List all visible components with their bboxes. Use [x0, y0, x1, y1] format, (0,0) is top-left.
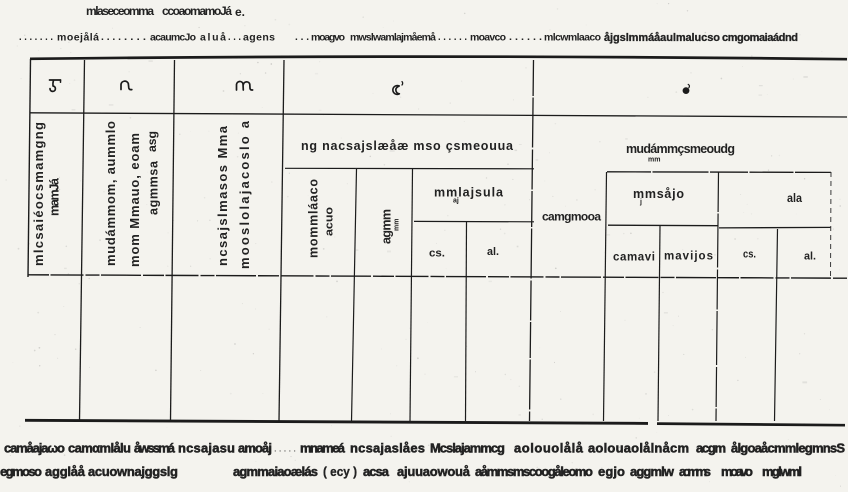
svg-text:ajuuaowouå: ajuuaowouå	[397, 464, 471, 479]
svg-text:agmm: agmm	[380, 209, 394, 244]
svg-text:cs.: cs.	[429, 248, 445, 260]
svg-text:. . . . . .: . . . . . .	[509, 31, 542, 43]
svg-text:moavco: moavco	[470, 32, 506, 44]
svg-text:mlcwmlaaco: mlcwmlaaco	[544, 32, 601, 44]
svg-text:ålgoaåcmmlegmnsS: ålgoaåcmmlegmnsS	[731, 441, 845, 456]
svg-text:al.: al.	[804, 251, 816, 263]
svg-text:e.: e.	[235, 5, 245, 19]
svg-text:ng nacsajslæåæ mso çsmeouua: ng nacsajslæåæ mso çsmeouua	[301, 139, 514, 153]
svg-text:. . .: . . .	[295, 31, 309, 43]
svg-text:åjgslmmáåaulmalucso: åjgslmmáåaulmalucso	[604, 32, 720, 44]
svg-text:mooslolajacoslo a: mooslolajacoslo a	[237, 120, 252, 269]
svg-text:mavijos: mavijos	[664, 251, 713, 263]
svg-text:. . . .: . . . .	[101, 31, 121, 43]
svg-text:acaumcJo: acaumcJo	[150, 32, 196, 44]
svg-text:cmgomaiaádnd: cmgomaiaádnd	[722, 32, 798, 44]
svg-text:mm: mm	[648, 157, 660, 164]
svg-text:moejålá: moejålá	[57, 32, 99, 44]
svg-text:mom Mmauo, eoam: mom Mmauo, eoam	[127, 133, 142, 267]
svg-text:mudámmom, aummlo: mudámmom, aummlo	[103, 121, 118, 266]
svg-text:acsa: acsa	[363, 464, 390, 479]
svg-text:aj: aj	[453, 198, 459, 205]
svg-text:acgm: acgm	[696, 441, 726, 456]
svg-text:mlcsaiéocsmamgng: mlcsaiéocsmamgng	[31, 122, 46, 266]
svg-text:aåmmsmscoogåleomo: aåmmsmscoogåleomo	[475, 464, 593, 479]
svg-text:agmmsa: agmmsa	[147, 160, 161, 215]
svg-text:mmlajsula: mmlajsula	[434, 186, 504, 200]
svg-text:egjo: egjo	[598, 464, 625, 479]
svg-text:. . . .: . . . .	[124, 31, 146, 43]
svg-text:. . .: . . .	[228, 31, 241, 43]
svg-text:camgmooa: camgmooa	[542, 210, 601, 224]
svg-text:acuownajggslg: acuownajggslg	[88, 464, 178, 479]
svg-text:j: j	[639, 199, 642, 206]
svg-text:amoåj: amoåj	[238, 441, 272, 456]
svg-text:Mcslajammcg: Mcslajammcg	[430, 441, 505, 456]
svg-text:cs.: cs.	[743, 249, 756, 261]
svg-text:mamJá: mamJá	[48, 178, 62, 216]
svg-text:mglwml: mglwml	[762, 464, 802, 479]
svg-text:agmmaiaoælás: agmmaiaoælás	[233, 464, 318, 479]
svg-text:camavi: camavi	[613, 252, 655, 264]
svg-text:aluå: aluå	[200, 32, 226, 44]
svg-text:ncsajaslåes: ncsajaslåes	[350, 441, 425, 456]
svg-text:moagvo: moagvo	[311, 32, 345, 44]
svg-text:. . . . . .: . . . . . .	[438, 31, 467, 43]
svg-text:aggmlw: aggmlw	[630, 464, 675, 479]
svg-text:camåajaωo: camåajaωo	[4, 441, 65, 456]
svg-text:mlaseceomma: mlaseceomma	[86, 4, 154, 18]
svg-text:moavo: moavo	[721, 464, 753, 479]
svg-text:. . . . .: . . . . .	[274, 444, 296, 455]
svg-text:ccoaomamoJá: ccoaomamoJá	[162, 4, 232, 18]
svg-text:acuo: acuo	[324, 207, 336, 236]
svg-text:ncsajslmasos Mma: ncsajslmasos Mma	[215, 125, 230, 266]
svg-text:åwssmá: åwssmá	[134, 441, 176, 456]
svg-text:( ecy ): ( ecy )	[323, 465, 357, 479]
svg-text:al.: al.	[487, 246, 499, 258]
svg-text:ncsajasu: ncsajasu	[178, 441, 235, 456]
svg-text:mommláaco: mommláaco	[307, 179, 321, 258]
svg-text:agens: agens	[243, 32, 275, 44]
svg-text:agglåå: agglåå	[45, 464, 86, 479]
svg-text:aolouaolålnåcm: aolouaolålnåcm	[588, 441, 689, 456]
svg-text:asg: asg	[145, 131, 159, 152]
svg-text:mnameá: mnameá	[300, 441, 346, 456]
svg-text:egmoso: egmoso	[0, 464, 42, 479]
svg-text:mm: mm	[394, 219, 401, 231]
svg-text:camαmlålu: camαmlålu	[68, 441, 131, 456]
svg-text:mwslwamlajmåemå: mwslwamlajmåemå	[350, 32, 436, 44]
svg-text:. . . . . . .: . . . . . . .	[19, 31, 53, 43]
svg-text:aomms: aomms	[679, 464, 711, 479]
svg-text:aolouolålå: aolouolålå	[514, 441, 584, 456]
